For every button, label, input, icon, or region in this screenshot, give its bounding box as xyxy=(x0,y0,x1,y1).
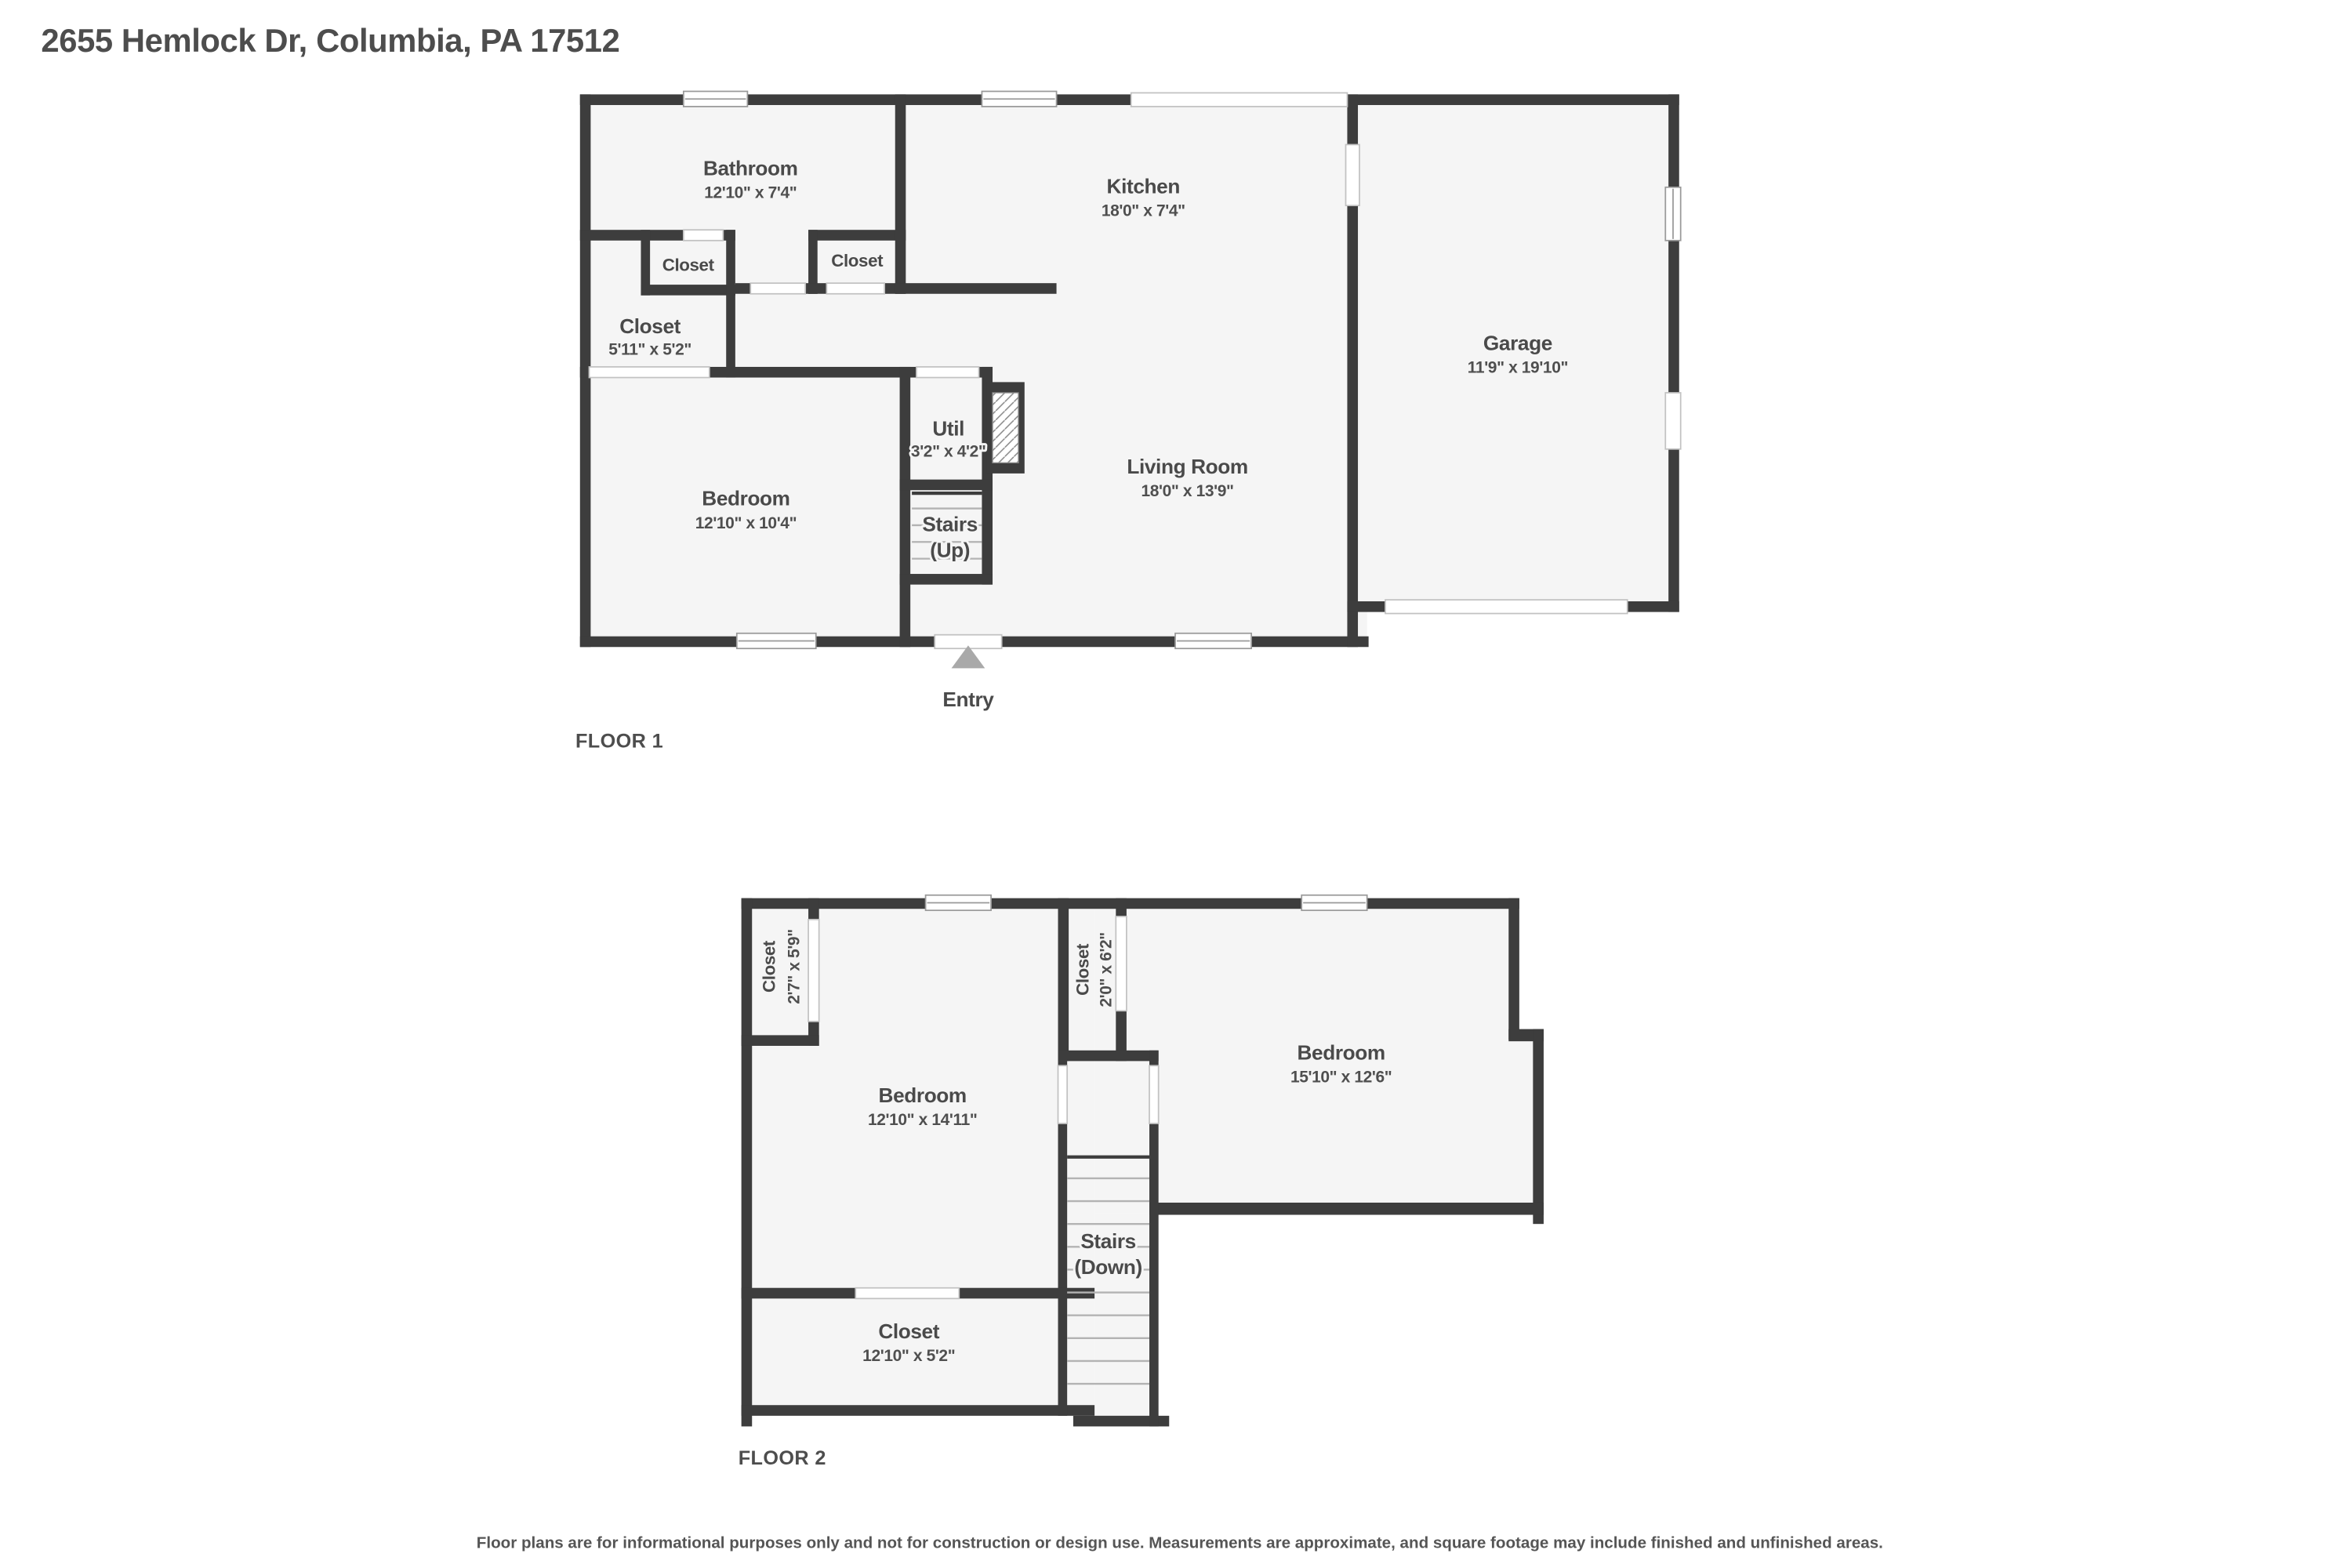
wall xyxy=(900,367,911,647)
wall xyxy=(895,283,1057,294)
room-dims-util: 3'2" x 4'2" xyxy=(911,443,986,461)
wall xyxy=(1533,1029,1544,1225)
room-label-bedroom-left: Bedroom xyxy=(879,1083,967,1107)
wall xyxy=(808,230,906,241)
floor1-caption: FLOOR 1 xyxy=(575,730,663,752)
wall xyxy=(742,898,753,1427)
door-opening xyxy=(826,283,884,294)
wall xyxy=(1668,94,1679,612)
wall xyxy=(1116,898,1127,916)
wall xyxy=(895,94,906,293)
room-label-stairs-f1-dir: (Up) xyxy=(930,539,970,562)
room-label-garage: Garage xyxy=(1483,332,1552,355)
wall xyxy=(742,898,1519,909)
wall xyxy=(1149,1203,1544,1215)
room-dims-kitchen: 18'0" x 7'4" xyxy=(1102,202,1185,220)
room-label-closet-small-right: Closet xyxy=(831,251,884,270)
room-dims-closet-hall: 5'11" x 5'2" xyxy=(608,340,691,358)
wall xyxy=(726,285,735,377)
floor-plan-canvas: 2655 Hemlock Dr, Columbia, PA 17512 xyxy=(0,0,2352,1568)
door-opening xyxy=(684,230,723,241)
room-label-closet-small-left: Closet xyxy=(662,256,715,275)
garage-door xyxy=(1385,600,1628,613)
room-label-closet-bottom: Closet xyxy=(878,1319,939,1343)
door-opening xyxy=(1149,1065,1159,1123)
wall xyxy=(1058,898,1069,1062)
room-dims-bedroom-f1: 12'10" x 10'4" xyxy=(695,514,797,532)
chimney-hatch xyxy=(993,393,1018,463)
room-label-stairs-f1: Stairs xyxy=(922,513,978,536)
room-dims-closet-mid: 2'0" x 6'2" xyxy=(1097,932,1115,1007)
floor1-plan: Bathroom 12'10" x 7'4" Kitchen 18'0" x 7… xyxy=(575,92,1681,753)
room-dims-bedroom-right: 15'10" x 12'6" xyxy=(1290,1069,1392,1087)
entry-label: Entry xyxy=(942,688,994,711)
floor2-plan: Closet 2'7" x 5'9" Closet 2'0" x 6'2" Be… xyxy=(739,895,1544,1469)
room-dims-closet-bottom: 12'10" x 5'2" xyxy=(862,1347,955,1365)
room-label-closet-mid: Closet xyxy=(1073,943,1092,996)
wall xyxy=(900,480,993,491)
room-dims-bedroom-left: 12'10" x 14'11" xyxy=(868,1111,977,1129)
room-label-closet-left: Closet xyxy=(759,940,779,993)
door-opening xyxy=(750,283,805,294)
room-label-bathroom: Bathroom xyxy=(703,156,798,180)
room-dims-living-room: 18'0" x 13'9" xyxy=(1142,482,1234,500)
page-title: 2655 Hemlock Dr, Columbia, PA 17512 xyxy=(41,22,619,59)
wall-opening xyxy=(1131,93,1348,106)
closet-door xyxy=(808,920,819,1022)
room-dims-closet-left: 2'7" x 5'9" xyxy=(785,929,803,1004)
wall xyxy=(1058,1051,1159,1062)
room-label-living-room: Living Room xyxy=(1127,455,1247,478)
floor1-chimney xyxy=(986,382,1025,474)
closet-door xyxy=(1116,916,1127,1011)
garage-door-opening xyxy=(1346,144,1359,205)
disclaimer: Floor plans are for informational purpos… xyxy=(477,1534,1883,1552)
room-label-kitchen: Kitchen xyxy=(1107,175,1180,198)
room-dims-bathroom: 12'10" x 7'4" xyxy=(704,183,797,201)
room-label-bedroom-f1: Bedroom xyxy=(702,487,789,510)
room-label-bedroom-right: Bedroom xyxy=(1298,1040,1385,1064)
room-label-util: Util xyxy=(932,416,964,440)
room-label-stairs-f2-dir: (Down) xyxy=(1074,1255,1142,1279)
room-dims-garage: 11'9" x 19'10" xyxy=(1468,359,1568,377)
wall xyxy=(742,1035,819,1046)
door-opening xyxy=(916,367,979,378)
wall xyxy=(1508,898,1519,1040)
room-label-closet-hall: Closet xyxy=(619,314,681,338)
door-opening xyxy=(589,367,709,378)
page: { "title": "2655 Hemlock Dr, Columbia, P… xyxy=(0,0,2352,1568)
door-opening xyxy=(1058,1065,1068,1123)
door-opening xyxy=(855,1288,959,1299)
wall xyxy=(641,285,735,296)
wall xyxy=(742,1405,1094,1416)
room-label-stairs-f2: Stairs xyxy=(1080,1229,1136,1253)
wall-opening xyxy=(1665,393,1680,449)
wall xyxy=(900,574,993,585)
floor2-caption: FLOOR 2 xyxy=(739,1447,826,1469)
